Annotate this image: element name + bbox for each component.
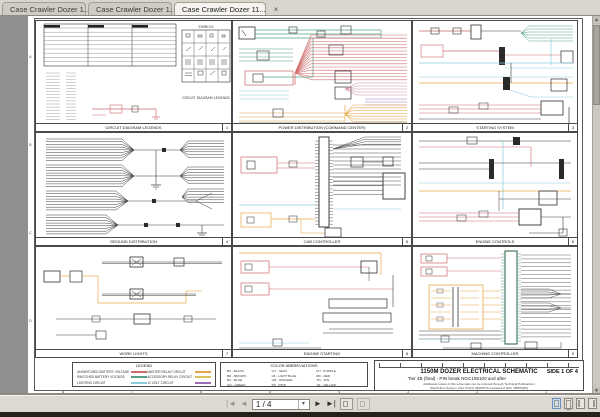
legend-color-swatch	[131, 371, 147, 373]
legend-entry: 12 VOLT CIRCUIT	[147, 380, 211, 386]
tab-document-2[interactable]: Case Crawler Dozer 1...	[88, 2, 172, 15]
previous-page-button[interactable]: ◄	[240, 398, 248, 410]
panel-caption: POWER DISTRIBUTION (COMMAND CENTER)2	[233, 123, 411, 131]
layout-facing-button[interactable]	[576, 398, 585, 409]
panel-zone-ref: 2	[402, 124, 411, 131]
scale-ruler	[379, 363, 579, 368]
legend-color-swatch	[195, 376, 211, 378]
copy-page-icon[interactable]	[357, 398, 370, 410]
legend-color-swatch	[195, 382, 211, 384]
panel-drawing-D	[36, 133, 231, 238]
panel-zone-ref: 5	[402, 238, 411, 245]
tab-label: Case Crawler Dozer 1...	[10, 5, 90, 14]
tab-label: Case Crawler Dozer 11...	[182, 5, 266, 14]
legend-color-swatch	[195, 371, 211, 373]
navigation-toolbar: |◄ ◄ 1 / 4▾ ► ►|	[0, 395, 600, 412]
tab-document-1[interactable]: Case Crawler Dozer 1...	[2, 2, 86, 15]
window-bottom-edge	[0, 412, 600, 417]
color-abbreviation: PK - PINK	[272, 383, 317, 387]
panel-drawing-E	[233, 133, 411, 238]
schematic-panel-C: STARTING SYSTEM3	[412, 20, 578, 132]
layout-book-button[interactable]	[588, 398, 597, 409]
panel-caption: STARTING SYSTEM3	[413, 123, 577, 131]
schematic-panel-G: WORK LIGHTS7	[35, 246, 232, 358]
panel-caption: WORK LIGHTS7	[36, 349, 231, 357]
panel-drawing-I	[413, 247, 577, 350]
panel-caption: ENGINE STARTING8	[233, 349, 411, 357]
schematic-panel-H: ENGINE STARTING8	[232, 246, 412, 358]
panel-drawing-A: SYMBOLSCIRCUIT DIAGRAM LEGENDS	[36, 21, 231, 124]
panel-drawing-H	[233, 247, 411, 350]
panel-zone-ref: 8	[402, 350, 411, 357]
title-block: 1150M DOZER ELECTRICAL SCHEMATIC SIDE 1 …	[374, 360, 584, 391]
panel-zone-ref: 4	[222, 238, 231, 245]
tab-label: Case Crawler Dozer 1...	[96, 5, 176, 14]
panel-zone-ref: 9	[568, 350, 577, 357]
zone-number: 7	[131, 389, 133, 394]
panel-zone-ref: 7	[222, 350, 231, 357]
last-page-button[interactable]: ►|	[326, 398, 336, 410]
next-page-button[interactable]: ►	[314, 398, 322, 410]
schematic-panel-B: POWER DISTRIBUTION (COMMAND CENTER)2	[232, 20, 412, 132]
zone-letter: D	[29, 318, 32, 323]
panel-caption: MACHINE CONTROLLER9	[413, 349, 577, 357]
panel-zone-ref: 3	[568, 124, 577, 131]
pdf-viewer-canvas[interactable]: SYMBOLSCIRCUIT DIAGRAM LEGENDSCIRCUIT DI…	[0, 16, 600, 395]
legend-color-swatch	[131, 382, 147, 384]
panel-caption: CIRCUIT DIAGRAM LEGENDS1	[36, 123, 231, 131]
zone-number: 5	[269, 389, 271, 394]
svg-text:SYMBOLS: SYMBOLS	[198, 25, 213, 29]
schematic-panel-D: GROUND DISTRIBUTION4	[35, 132, 232, 246]
legend-color-swatch	[131, 376, 147, 378]
schematic-panel-E: CAB CONTROLLER5	[232, 132, 412, 246]
color-abbreviation: YE - YELLOW	[316, 383, 361, 387]
scrollbar-thumb[interactable]	[593, 25, 600, 105]
sheet-side-label: SIDE 1 OF 4	[547, 369, 578, 375]
layout-continuous-button[interactable]	[564, 398, 573, 409]
order-note-line2: Distribution System. Part # RAC 48280715…	[375, 386, 583, 390]
scroll-up-icon[interactable]: ▲	[593, 16, 600, 24]
zone-letter: B	[29, 142, 32, 147]
schematic-subtitle: Tier 4B (final) - PIN break NGC105100 an…	[375, 376, 539, 381]
zone-number: 8	[62, 389, 64, 394]
zone-letter: C	[29, 230, 32, 235]
scroll-down-icon[interactable]: ▼	[593, 387, 600, 395]
close-tab-icon[interactable]: ×	[274, 5, 279, 14]
color-abbreviations-box: COLOR ABBREVIATIONS BK - BLACKGY - GRAYP…	[220, 362, 368, 387]
panel-drawing-C	[413, 21, 577, 124]
panel-drawing-B	[233, 21, 411, 124]
schematic-panel-I: MACHINE CONTROLLER9	[412, 246, 578, 358]
vertical-scrollbar[interactable]: ▲ ▼	[592, 16, 600, 395]
zone-number: 6	[200, 389, 202, 394]
svg-text:CIRCUIT DIAGRAM LEGENDS: CIRCUIT DIAGRAM LEGENDS	[182, 96, 230, 100]
zone-letter: A	[29, 54, 32, 59]
chevron-down-icon[interactable]: ▾	[298, 400, 308, 409]
duplicate-page-icon[interactable]	[340, 398, 353, 410]
schematic-page: SYMBOLSCIRCUIT DIAGRAM LEGENDSCIRCUIT DI…	[28, 16, 592, 395]
panel-zone-ref: 1	[222, 124, 231, 131]
schematic-panel-F: ENGINE CONTROLS6	[412, 132, 578, 246]
panel-drawing-F	[413, 133, 577, 238]
tab-bar: Case Crawler Dozer 1... Case Crawler Doz…	[0, 0, 600, 16]
layout-single-page-button[interactable]	[552, 398, 561, 409]
tab-document-3-active[interactable]: Case Crawler Dozer 11...×	[174, 2, 266, 15]
panel-caption: CAB CONTROLLER5	[233, 237, 411, 245]
panel-caption: GROUND DISTRIBUTION4	[36, 237, 231, 245]
legend-box: LEGEND UNSWITCHED BATTERY VOLTAGEMASTER …	[72, 362, 216, 387]
schematic-panel-A: SYMBOLSCIRCUIT DIAGRAM LEGENDSCIRCUIT DI…	[35, 20, 232, 132]
panel-drawing-G	[36, 247, 231, 350]
panel-caption: ENGINE CONTROLS6	[413, 237, 577, 245]
panel-zone-ref: 6	[568, 238, 577, 245]
zone-number: 4	[338, 389, 340, 394]
first-page-button[interactable]: |◄	[226, 398, 236, 410]
color-abbreviation: GN - GREEN	[227, 383, 272, 387]
page-number-input[interactable]: 1 / 4▾	[252, 399, 310, 410]
legend-entry: LIGHTING CIRCUIT	[77, 380, 147, 386]
page-number-value: 1 / 4	[256, 400, 272, 409]
